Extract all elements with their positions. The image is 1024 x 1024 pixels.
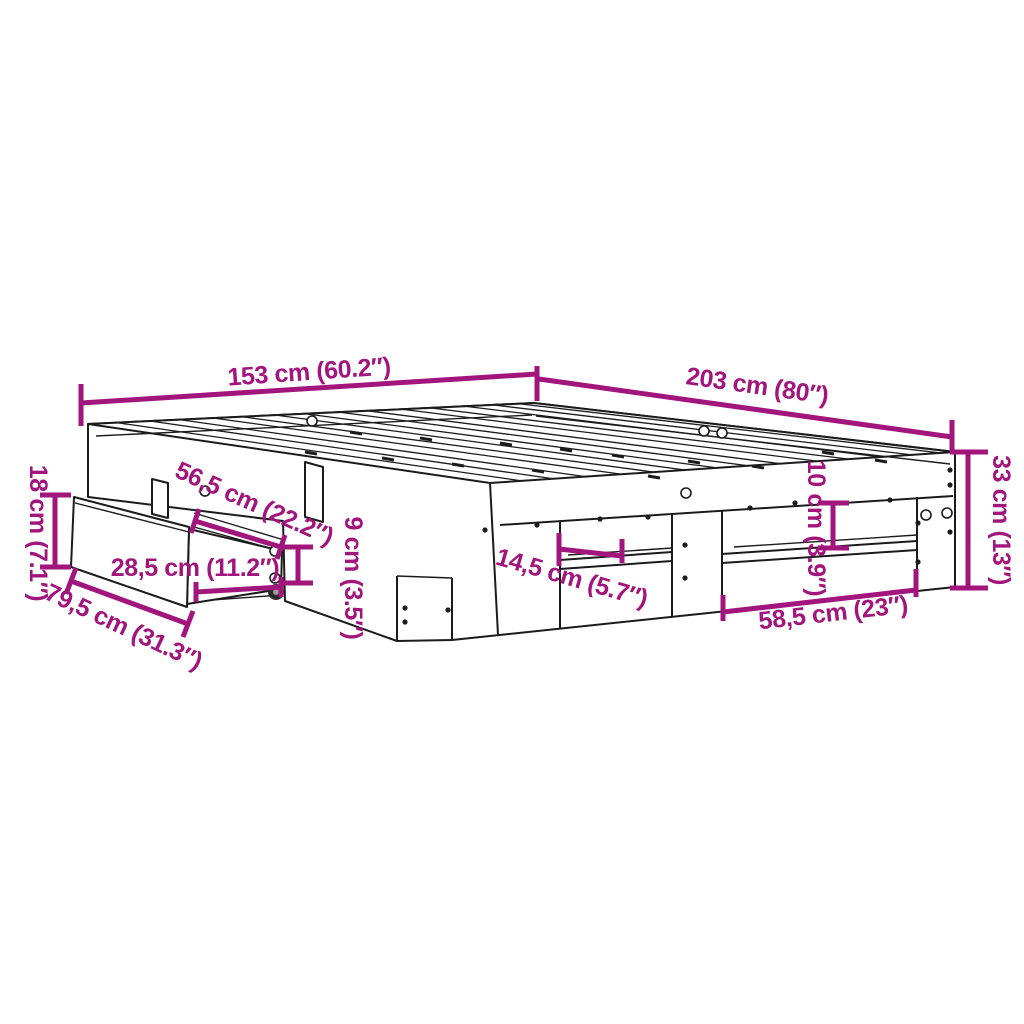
dim-label-frame-height: 33 cm (13″)	[987, 455, 1015, 585]
drawer-front-panel	[71, 497, 189, 607]
product-dimension-diagram: 153 cm (60.2″) 203 cm (80″) 33 cm (13″) …	[0, 0, 1024, 1024]
dimension-frame-height: 33 cm (13″)	[950, 452, 1015, 588]
dimension-drawer-depth: 28,5 cm (11.2″)	[111, 554, 281, 602]
bed-frame-dimension-drawing: 153 cm (60.2″) 203 cm (80″) 33 cm (13″) …	[0, 0, 1024, 1024]
slide-bracket-left	[152, 479, 168, 518]
dim-label-drawer-depth: 28,5 cm (11.2″)	[111, 554, 280, 582]
dim-label-drawer-front-height: 18 cm (7.1″)	[24, 465, 52, 601]
dimension-drawer-front-height: 18 cm (7.1″)	[24, 465, 71, 601]
dim-label-side-rail-height: 9 cm (3.5″)	[339, 517, 367, 640]
dim-label-shelf-clearance: 10 cm (3.9″)	[802, 460, 830, 596]
